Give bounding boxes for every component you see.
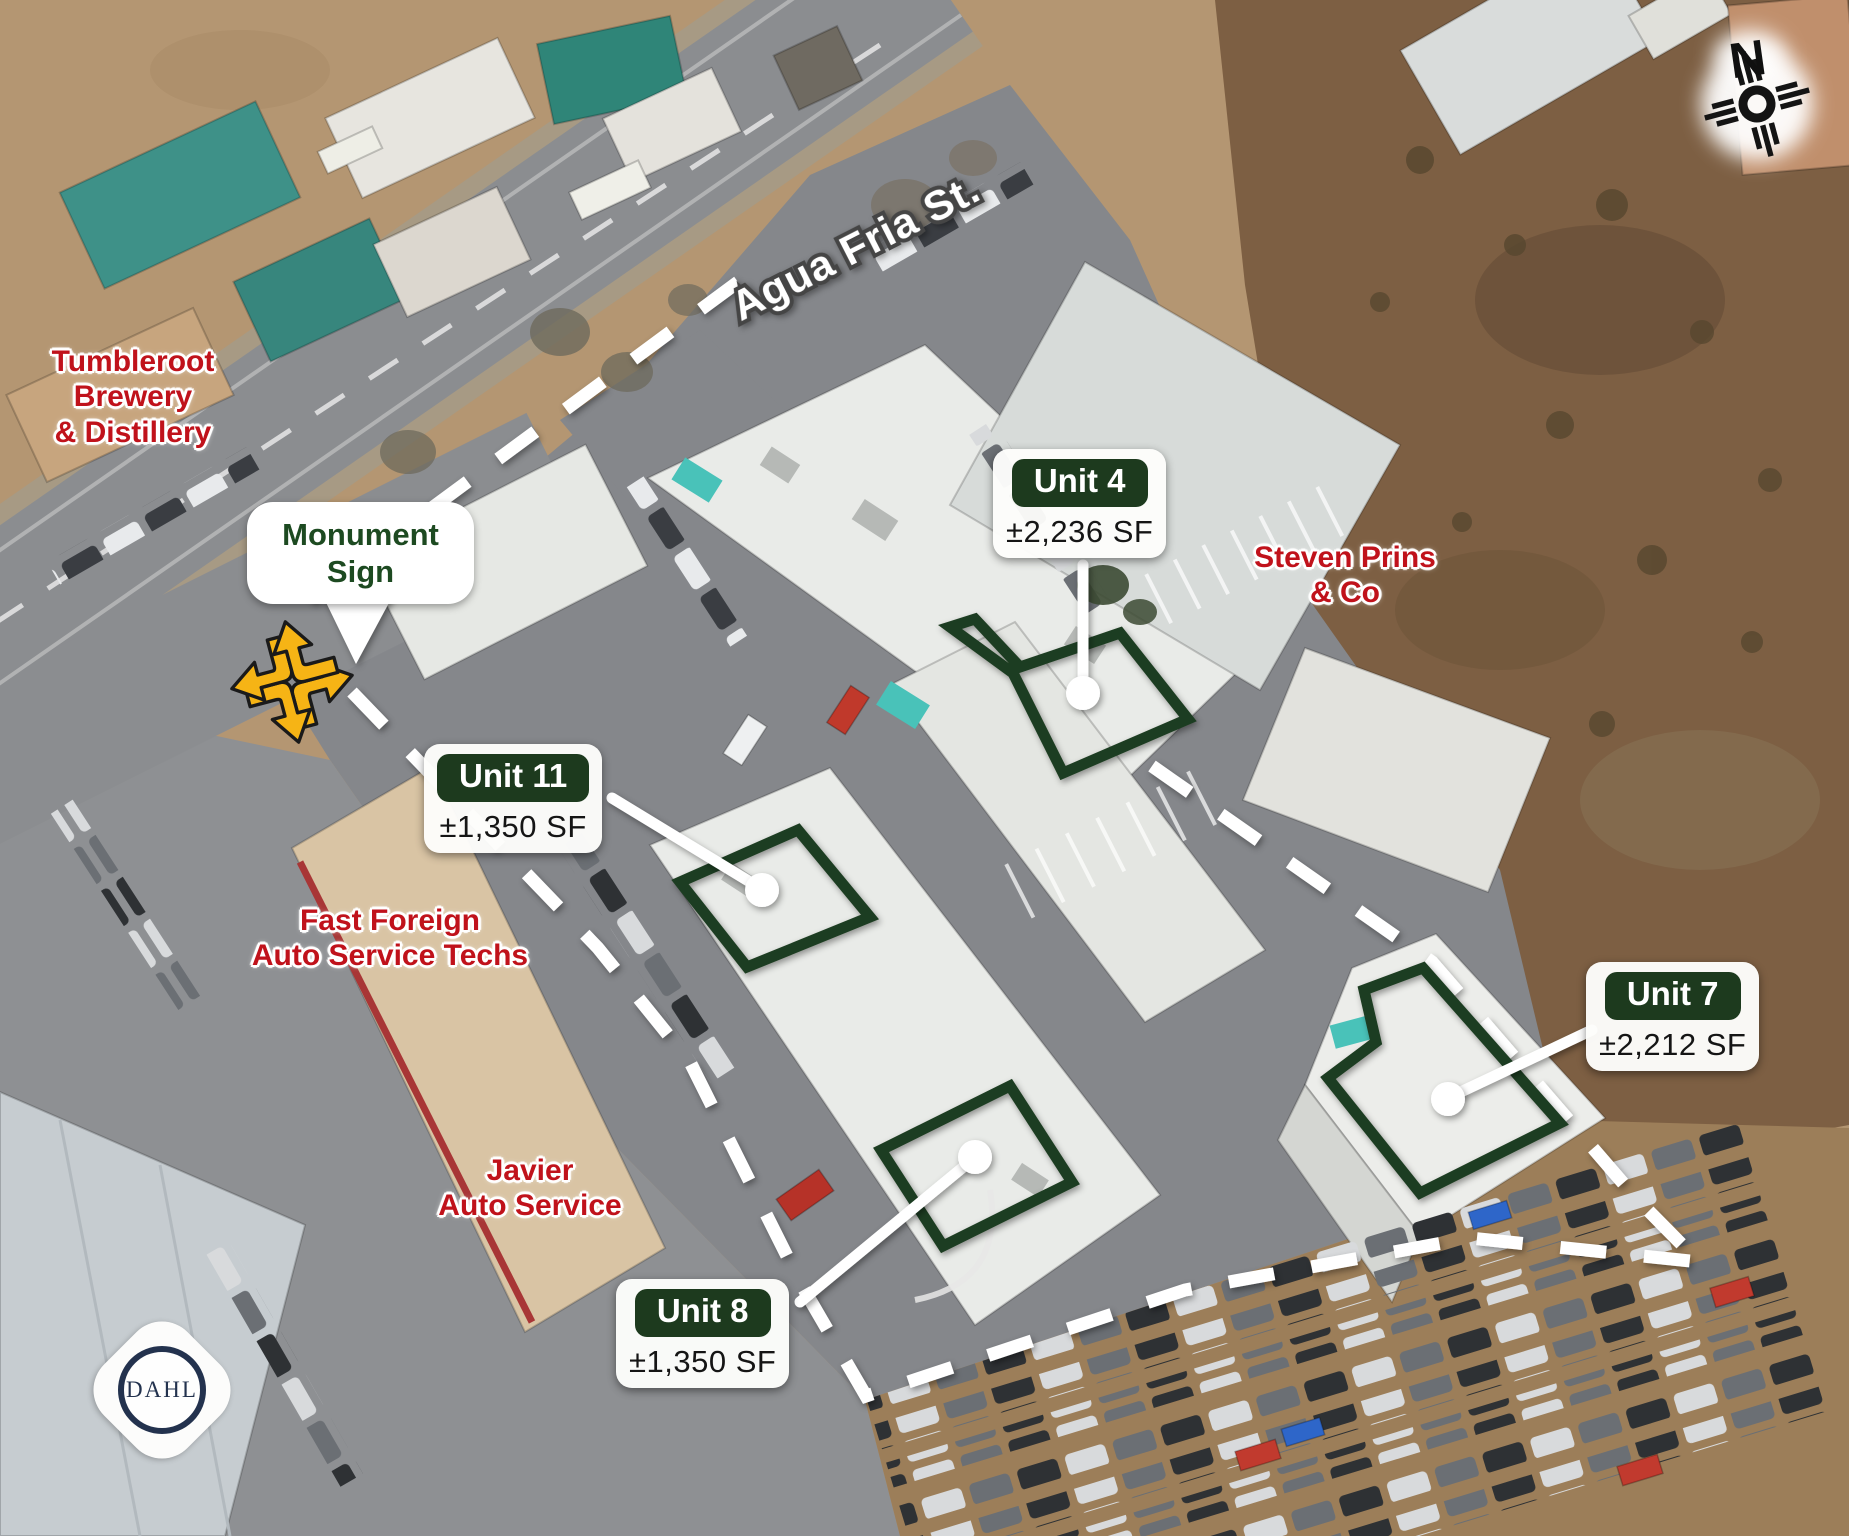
business-label-steven-prins: Steven Prins & Co — [1225, 540, 1465, 611]
unit-8-size: ±1,350 SF — [629, 1344, 776, 1380]
unit-label-8: Unit 8 ±1,350 SF — [616, 1279, 789, 1388]
compass-n-label: N — [1726, 29, 1770, 89]
unit-4-name: Unit 4 — [1012, 459, 1148, 507]
aerial-site-plan: N Agua Fria St. Tumbleroot Brewery & Dis… — [0, 0, 1849, 1536]
unit-label-4: Unit 4 ±2,236 SF — [993, 449, 1166, 558]
dahl-ring: DAHL — [118, 1346, 206, 1434]
unit-label-7: Unit 7 ±2,212 SF — [1586, 962, 1759, 1071]
unit-4-size: ±2,236 SF — [1006, 514, 1153, 550]
business-label-javier: Javier Auto Service — [395, 1153, 665, 1224]
business-label-tumbleroot: Tumbleroot Brewery & Distillery — [13, 344, 253, 450]
unit-11-size: ±1,350 SF — [437, 809, 589, 845]
aerial-photo-layer: N Agua Fria St. — [0, 0, 1849, 1536]
dahl-logo-text: DAHL — [126, 1377, 198, 1403]
monument-sign-callout: Monument Sign — [247, 502, 474, 604]
unit-7-name: Unit 7 — [1605, 972, 1741, 1020]
dahl-logo: DAHL — [103, 1331, 221, 1449]
business-label-fast-foreign: Fast Foreign Auto Service Techs — [225, 903, 555, 974]
unit-label-11: Unit 11 ±1,350 SF — [424, 744, 602, 853]
unit-8-name: Unit 8 — [635, 1289, 771, 1337]
unit-7-size: ±2,212 SF — [1599, 1027, 1746, 1063]
unit-11-name: Unit 11 — [437, 754, 589, 802]
